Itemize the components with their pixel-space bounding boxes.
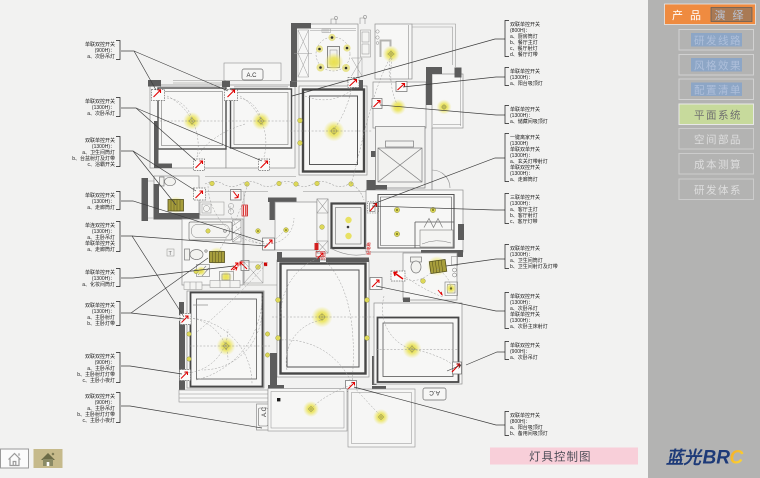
svg-text:a、次卧吊灯: a、次卧吊灯 xyxy=(87,110,115,117)
svg-text:单联双控开关: 单联双控开关 xyxy=(85,98,115,105)
svg-text:平面系统: 平面系统 xyxy=(694,109,742,122)
svg-text:b、主卧灯带: b、主卧灯带 xyxy=(87,320,115,327)
svg-text:研发体系: 研发体系 xyxy=(694,184,742,197)
svg-text:成本测算: 成本测算 xyxy=(694,158,742,171)
svg-text:蓝光: 蓝光 xyxy=(666,448,703,468)
svg-text:产品: 产品 xyxy=(672,8,708,22)
svg-text:d、餐厅灯带: d、餐厅灯带 xyxy=(510,51,538,58)
svg-text:A.C: A.C xyxy=(429,389,440,396)
svg-text:空间部品: 空间部品 xyxy=(694,133,742,146)
svg-text:a、卫生间筒灯: a、卫生间筒灯 xyxy=(510,257,543,264)
svg-text:A.C: A.C xyxy=(247,73,258,79)
svg-text:a、次卧主床射灯: a、次卧主床射灯 xyxy=(510,323,548,330)
svg-text:单联双控开关: 单联双控开关 xyxy=(85,192,115,199)
svg-text:a、化妆间筒灯: a、化妆间筒灯 xyxy=(82,281,115,288)
svg-text:a、主卧吊灯: a、主卧吊灯 xyxy=(87,234,115,241)
svg-text:a、卫生间筒灯: a、卫生间筒灯 xyxy=(82,149,115,156)
svg-text:a、次卧吊灯: a、次卧吊灯 xyxy=(510,305,538,312)
svg-text:单联双控开关: 单联双控开关 xyxy=(510,164,540,171)
svg-text:a、次卧吊灯: a、次卧吊灯 xyxy=(510,354,538,361)
svg-text:a、主卧吊灯: a、主卧吊灯 xyxy=(87,405,115,412)
svg-text:a、玄关灯带射灯: a、玄关灯带射灯 xyxy=(510,158,548,165)
svg-text:c、餐厅射灯: c、餐厅射灯 xyxy=(510,45,538,52)
svg-text:c、主卧小夜灯: c、主卧小夜灯 xyxy=(82,377,115,384)
svg-text:c、主卧小夜灯: c、主卧小夜灯 xyxy=(82,417,115,424)
svg-text:单联单控开关: 单联单控开关 xyxy=(510,68,540,75)
svg-text:风格效果: 风格效果 xyxy=(694,59,742,72)
svg-text:单连双控开关: 单连双控开关 xyxy=(85,222,115,229)
svg-text:演绎: 演绎 xyxy=(715,8,751,22)
svg-text:双联双控开关: 双联双控开关 xyxy=(85,393,115,400)
svg-text:研发线路: 研发线路 xyxy=(694,34,742,47)
svg-text:双联单控开关: 双联单控开关 xyxy=(85,137,115,144)
svg-text:单联双控开关: 单联双控开关 xyxy=(510,293,540,300)
svg-text:c、客厅灯带: c、客厅灯带 xyxy=(510,218,538,225)
svg-text:单联单控开关: 单联单控开关 xyxy=(510,106,540,113)
svg-text:A.C: A.C xyxy=(262,406,268,417)
svg-text:a、阳台吸顶灯: a、阳台吸顶灯 xyxy=(510,80,543,87)
svg-text:三联单控开关: 三联单控开关 xyxy=(510,194,540,201)
svg-text:配电箱: 配电箱 xyxy=(365,242,372,255)
svg-text:b、台盆射灯及灯带: b、台盆射灯及灯带 xyxy=(72,155,115,162)
svg-text:单联双控开关: 单联双控开关 xyxy=(510,342,540,349)
svg-text:a、主卧吊灯: a、主卧吊灯 xyxy=(87,365,115,372)
svg-text:b、客厅射灯: b、客厅射灯 xyxy=(510,212,538,219)
svg-text:BR: BR xyxy=(703,448,731,469)
svg-text:b、卫生间射灯及灯带: b、卫生间射灯及灯带 xyxy=(510,263,558,270)
svg-text:a、储藏间吸顶灯: a、储藏间吸顶灯 xyxy=(510,118,548,125)
svg-text:a、走廊筒灯: a、走廊筒灯 xyxy=(87,204,115,211)
svg-text:双联单控开关: 双联单控开关 xyxy=(85,302,115,309)
svg-text:b、备用间吸顶灯: b、备用间吸顶灯 xyxy=(510,430,548,437)
svg-text:单联单控开关: 单联单控开关 xyxy=(510,311,540,318)
svg-text:灯具控制图: 灯具控制图 xyxy=(529,450,592,464)
svg-text:a、阳台吸顶灯: a、阳台吸顶灯 xyxy=(510,424,543,431)
svg-text:单联双单开关: 单联双单开关 xyxy=(510,146,540,153)
svg-text:双联双控开关: 双联双控开关 xyxy=(85,353,115,360)
svg-text:双联单控开关: 双联单控开关 xyxy=(510,21,540,28)
svg-text:一键离家开关: 一键离家开关 xyxy=(510,134,540,141)
svg-text:配置清单: 配置清单 xyxy=(694,84,742,97)
svg-text:a、走廊筒灯: a、走廊筒灯 xyxy=(510,176,538,183)
svg-text:单联双控开关: 单联双控开关 xyxy=(85,41,115,48)
svg-text:a、次卧吊灯: a、次卧吊灯 xyxy=(87,53,115,60)
svg-text:单联单控开关: 单联单控开关 xyxy=(85,269,115,276)
svg-text:a、客厅主灯: a、客厅主灯 xyxy=(510,206,538,213)
svg-text:双联单控开关: 双联单控开关 xyxy=(510,412,540,419)
svg-text:b、餐厅主灯: b、餐厅主灯 xyxy=(510,39,538,46)
svg-text:双联单控开关: 双联单控开关 xyxy=(510,245,540,252)
svg-text:a、走廊筒灯: a、走廊筒灯 xyxy=(87,246,115,253)
svg-text:c、浴霸开关: c、浴霸开关 xyxy=(87,161,115,168)
svg-text:a、厨房筒灯: a、厨房筒灯 xyxy=(510,33,538,40)
svg-text:b、主卧射灯灯带: b、主卧射灯灯带 xyxy=(77,371,115,378)
svg-text:b、主卧射灯灯带: b、主卧射灯灯带 xyxy=(77,411,115,418)
svg-text:单联单控开关: 单联单控开关 xyxy=(85,240,115,247)
svg-text:C: C xyxy=(730,448,744,469)
svg-text:a、主卧射灯: a、主卧射灯 xyxy=(87,314,115,321)
